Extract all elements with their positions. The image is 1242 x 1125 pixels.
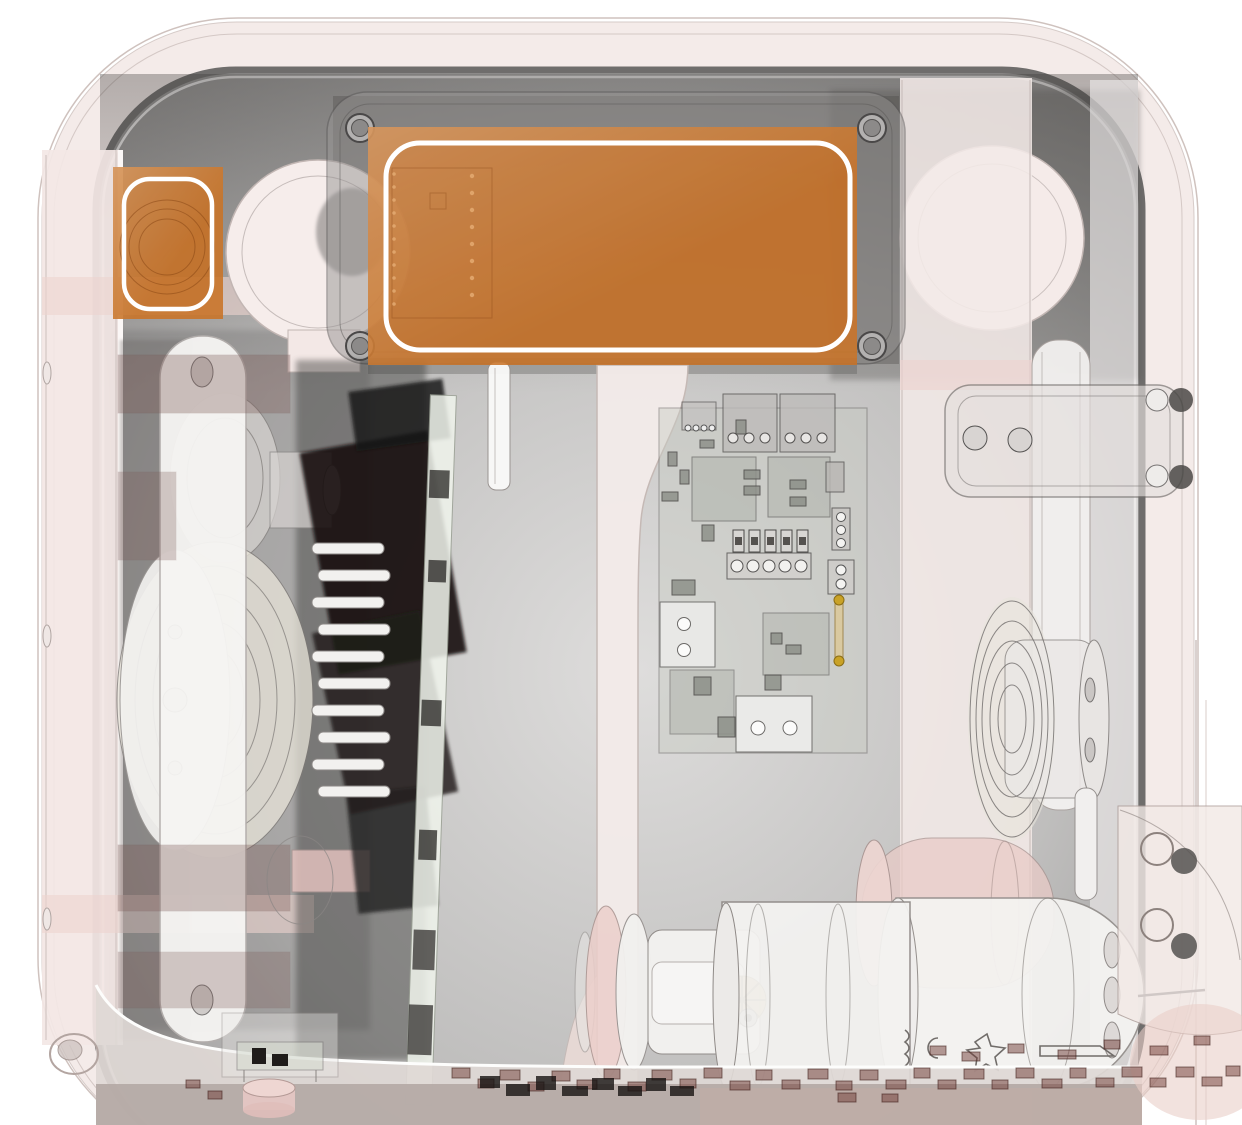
relay-block <box>736 696 812 752</box>
relay-block <box>660 602 715 667</box>
bracket-pin <box>1171 933 1197 959</box>
hotspot-small-outline <box>124 179 212 309</box>
bracket-pin <box>1169 465 1193 489</box>
clamp-bracket <box>118 952 290 1008</box>
left-support-arm <box>160 336 246 1042</box>
clamp-bracket <box>118 355 290 413</box>
pink-standoff-cylinder <box>243 1079 295 1118</box>
bottom-left-connector-box <box>222 1013 338 1082</box>
bracket-screw <box>858 114 886 142</box>
clamp-bracket <box>118 845 290 911</box>
hotspot-small-highlight[interactable] <box>113 167 223 319</box>
device-xray-render <box>0 0 1242 1125</box>
bracket-pin <box>1169 388 1193 412</box>
frame-hole <box>43 362 51 384</box>
clamp-bracket <box>118 472 176 560</box>
device-xray-view <box>0 0 1242 1125</box>
motor-body <box>722 902 910 1088</box>
bracket-pin <box>1171 848 1197 874</box>
guide-rod <box>488 362 510 490</box>
bracket-screw <box>858 332 886 360</box>
hotspot-large-outline <box>386 143 850 350</box>
frame-hole <box>43 625 51 647</box>
standoff-post <box>835 600 843 660</box>
resistor-row <box>733 530 808 552</box>
right-bracket <box>945 385 1193 497</box>
hotspot-large-highlight[interactable] <box>368 127 857 365</box>
frame-hole <box>43 908 51 930</box>
main-pcb <box>659 394 867 753</box>
pcb-connector <box>780 394 835 452</box>
